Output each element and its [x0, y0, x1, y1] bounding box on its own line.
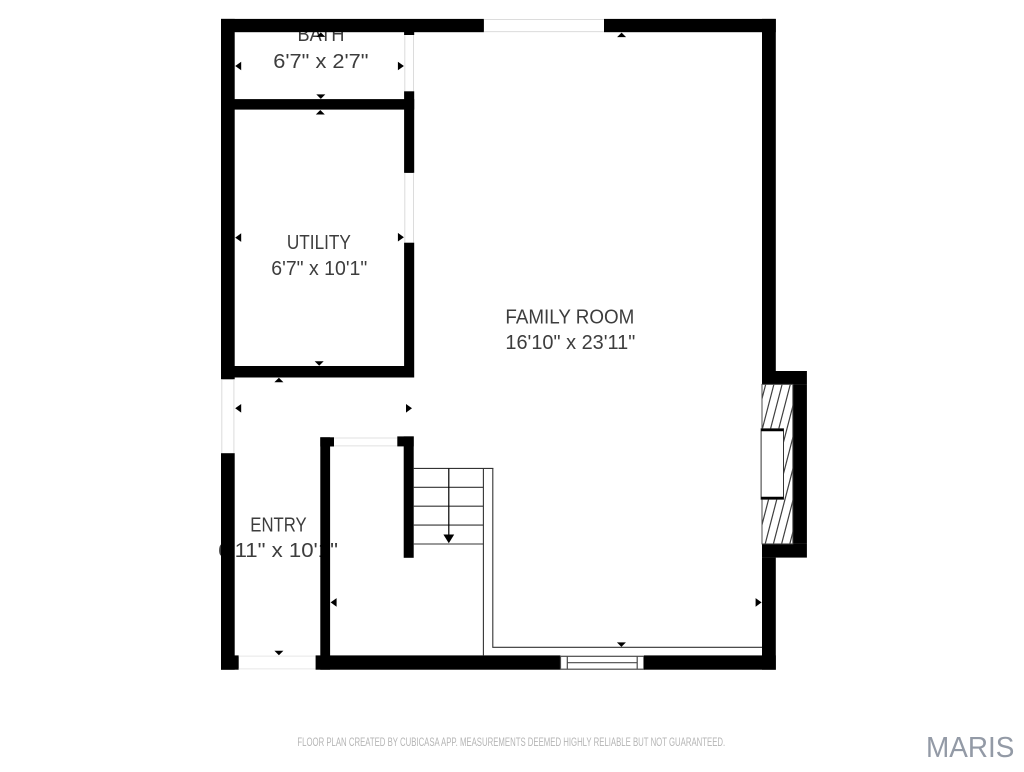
svg-text:ENTRY: ENTRY	[250, 514, 307, 537]
svg-text:16'10" x 23'11": 16'10" x 23'11"	[505, 331, 635, 354]
svg-text:MARIS: MARIS	[926, 732, 1014, 764]
svg-text:FAMILY ROOM: FAMILY ROOM	[505, 305, 634, 328]
svg-text:6'7" x 2'7": 6'7" x 2'7"	[273, 50, 368, 73]
svg-text:UTILITY: UTILITY	[287, 231, 351, 254]
svg-text:6'11" x 10'1": 6'11" x 10'1"	[218, 539, 338, 562]
svg-text:6'7" x 10'1": 6'7" x 10'1"	[271, 257, 367, 280]
svg-text:FLOOR PLAN CREATED BY CUBICASA: FLOOR PLAN CREATED BY CUBICASA APP. MEAS…	[297, 735, 725, 749]
